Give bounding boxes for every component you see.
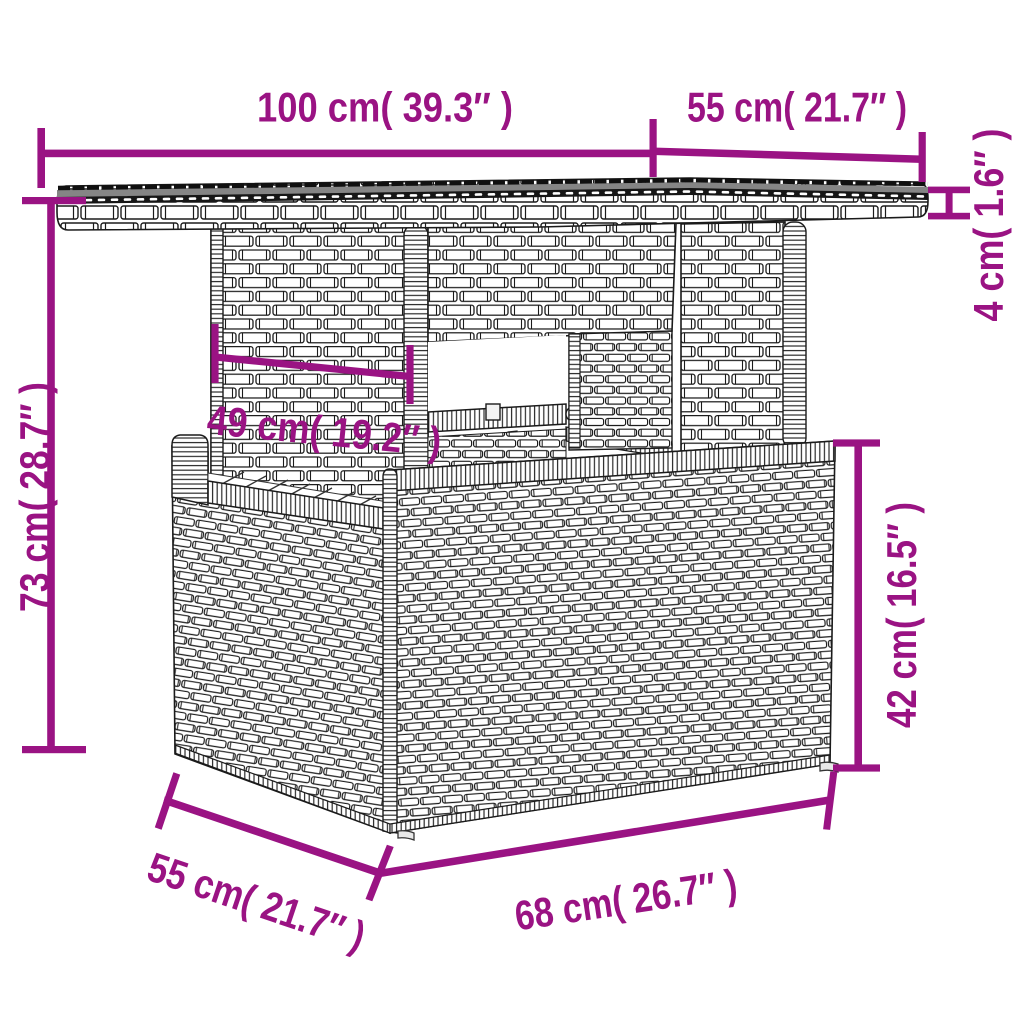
svg-text:4 cm( 1.6″ ): 4 cm( 1.6″ )	[965, 129, 1012, 322]
svg-text:73 cm( 28.7″ ): 73 cm( 28.7″ )	[11, 382, 58, 612]
svg-text:55 cm( 21.7″ ): 55 cm( 21.7″ )	[687, 84, 907, 131]
svg-text:42 cm( 16.5″ ): 42 cm( 16.5″ )	[878, 502, 925, 728]
svg-text:100 cm( 39.3″ ): 100 cm( 39.3″ )	[257, 84, 513, 131]
